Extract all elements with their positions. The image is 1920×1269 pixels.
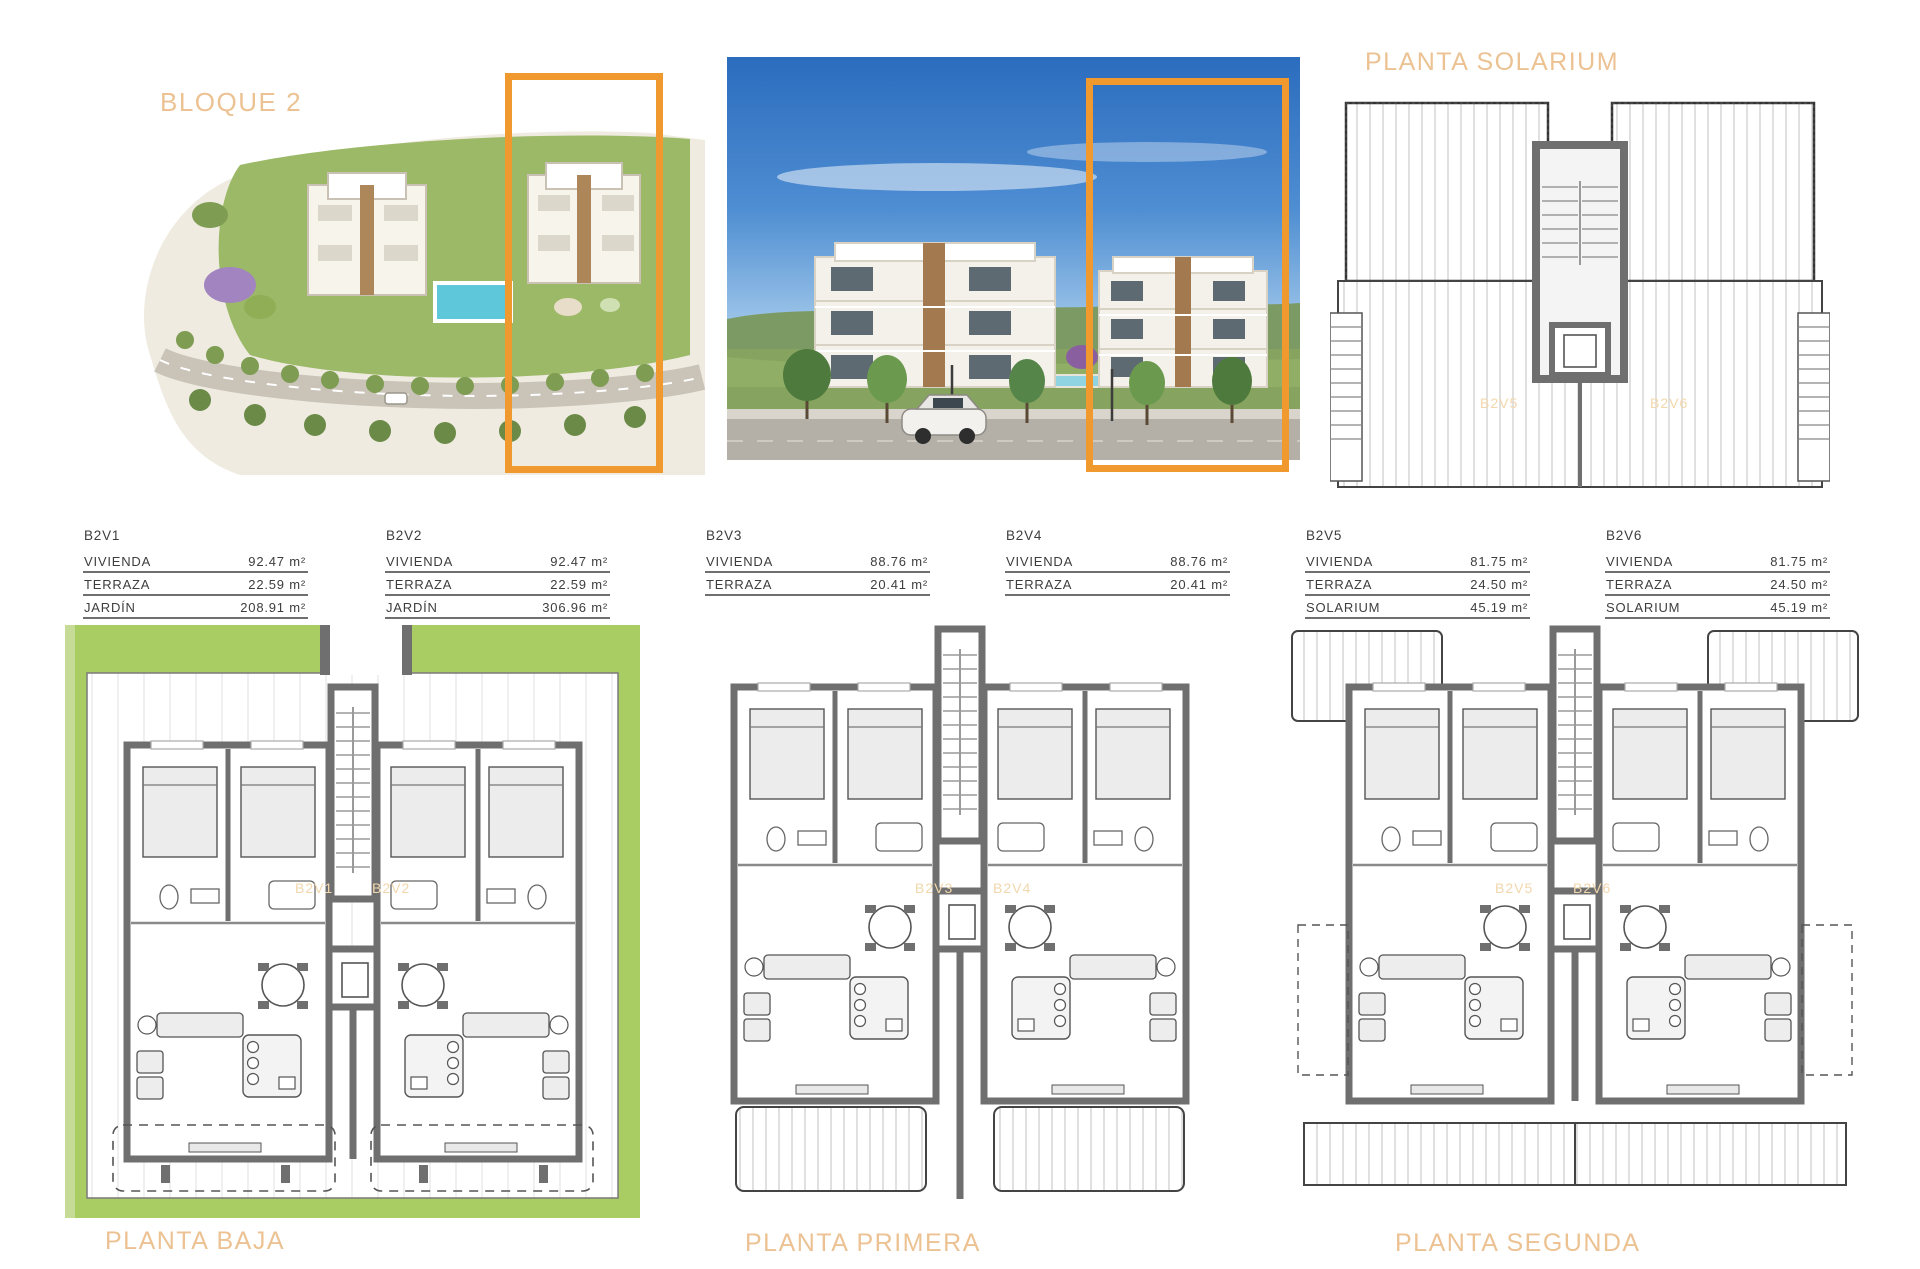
plan-segunda: B2V5 B2V6 — [1290, 625, 1860, 1210]
plan-solarium: B2V5 B2V6 — [1330, 95, 1830, 500]
table-row: TERRAZA24.50 m² — [1605, 573, 1830, 596]
table-row: JARDÍN306.96 m² — [385, 596, 610, 619]
row-value: 24.50 m² — [1770, 577, 1828, 592]
segunda-unit-label-right: B2V6 — [1573, 880, 1611, 896]
row-label: JARDÍN — [386, 600, 438, 615]
row-value: 306.96 m² — [542, 600, 608, 615]
row-label: VIVIENDA — [1306, 554, 1373, 569]
unit-table-b2v6: B2V6 VIVIENDA81.75 m² TERRAZA24.50 m² SO… — [1605, 528, 1830, 619]
segunda-title: PLANTA SEGUNDA — [1395, 1229, 1641, 1258]
row-label: VIVIENDA — [386, 554, 453, 569]
solarium-unit-label-left: B2V5 — [1480, 395, 1518, 411]
row-value: 88.76 m² — [1170, 554, 1228, 569]
table-row: VIVIENDA92.47 m² — [83, 550, 308, 573]
table-row: JARDÍN208.91 m² — [83, 596, 308, 619]
row-value: 81.75 m² — [1470, 554, 1528, 569]
row-value: 20.41 m² — [870, 577, 928, 592]
aerial-highlight-box — [505, 73, 663, 473]
row-value: 22.59 m² — [248, 577, 306, 592]
row-value: 45.19 m² — [1770, 600, 1828, 615]
unit-table-b2v2: B2V2 VIVIENDA92.47 m² TERRAZA22.59 m² JA… — [385, 528, 610, 619]
baja-unit-label-left: B2V1 — [295, 880, 333, 896]
row-value: 92.47 m² — [550, 554, 608, 569]
row-value: 81.75 m² — [1770, 554, 1828, 569]
table-row: VIVIENDA88.76 m² — [1005, 550, 1230, 573]
unit-id: B2V4 — [1005, 528, 1230, 550]
row-label: TERRAZA — [1006, 577, 1072, 592]
primera-unit-label-left: B2V3 — [915, 880, 953, 896]
row-label: JARDÍN — [84, 600, 136, 615]
row-value: 22.59 m² — [550, 577, 608, 592]
unit-id: B2V2 — [385, 528, 610, 550]
table-row: VIVIENDA81.75 m² — [1605, 550, 1830, 573]
baja-title: PLANTA BAJA — [105, 1227, 285, 1256]
plan-baja-drawing — [65, 625, 640, 1218]
row-label: VIVIENDA — [1606, 554, 1673, 569]
plan-primera-drawing — [700, 625, 1220, 1210]
row-label: VIVIENDA — [84, 554, 151, 569]
row-value: 20.41 m² — [1170, 577, 1228, 592]
row-label: TERRAZA — [1606, 577, 1672, 592]
plan-baja: B2V1 B2V2 — [65, 625, 640, 1218]
row-label: TERRAZA — [386, 577, 452, 592]
unit-table-b2v3: B2V3 VIVIENDA88.76 m² TERRAZA20.41 m² — [705, 528, 930, 596]
row-label: VIVIENDA — [1006, 554, 1073, 569]
row-label: SOLARIUM — [1306, 600, 1380, 615]
table-row: TERRAZA22.59 m² — [83, 573, 308, 596]
row-value: 24.50 m² — [1470, 577, 1528, 592]
table-row: VIVIENDA81.75 m² — [1305, 550, 1530, 573]
street-highlight-box — [1086, 78, 1289, 472]
unit-table-b2v5: B2V5 VIVIENDA81.75 m² TERRAZA24.50 m² SO… — [1305, 528, 1530, 619]
plan-primera: B2V3 B2V4 — [700, 625, 1220, 1210]
table-row: SOLARIUM45.19 m² — [1605, 596, 1830, 619]
row-value: 92.47 m² — [248, 554, 306, 569]
row-label: VIVIENDA — [706, 554, 773, 569]
row-label: TERRAZA — [1306, 577, 1372, 592]
baja-unit-label-right: B2V2 — [372, 880, 410, 896]
unit-id: B2V1 — [83, 528, 308, 550]
solarium-unit-label-right: B2V6 — [1650, 395, 1688, 411]
unit-table-b2v4: B2V4 VIVIENDA88.76 m² TERRAZA20.41 m² — [1005, 528, 1230, 596]
table-row: TERRAZA20.41 m² — [1005, 573, 1230, 596]
row-value: 208.91 m² — [240, 600, 306, 615]
plan-segunda-drawing — [1290, 625, 1860, 1210]
solarium-title: PLANTA SOLARIUM — [1365, 48, 1619, 77]
plan-solarium-drawing — [1330, 95, 1830, 500]
row-value: 45.19 m² — [1470, 600, 1528, 615]
segunda-unit-label-left: B2V5 — [1495, 880, 1533, 896]
row-label: TERRAZA — [84, 577, 150, 592]
row-label: TERRAZA — [706, 577, 772, 592]
table-row: SOLARIUM45.19 m² — [1305, 596, 1530, 619]
table-row: VIVIENDA88.76 m² — [705, 550, 930, 573]
bloque-title: BLOQUE 2 — [160, 87, 302, 118]
primera-unit-label-right: B2V4 — [993, 880, 1031, 896]
table-row: TERRAZA22.59 m² — [385, 573, 610, 596]
row-label: SOLARIUM — [1606, 600, 1680, 615]
table-row: TERRAZA24.50 m² — [1305, 573, 1530, 596]
unit-id: B2V3 — [705, 528, 930, 550]
row-value: 88.76 m² — [870, 554, 928, 569]
unit-id: B2V5 — [1305, 528, 1530, 550]
unit-id: B2V6 — [1605, 528, 1830, 550]
primera-title: PLANTA PRIMERA — [745, 1229, 981, 1258]
table-row: VIVIENDA92.47 m² — [385, 550, 610, 573]
table-row: TERRAZA20.41 m² — [705, 573, 930, 596]
unit-table-b2v1: B2V1 VIVIENDA92.47 m² TERRAZA22.59 m² JA… — [83, 528, 308, 619]
